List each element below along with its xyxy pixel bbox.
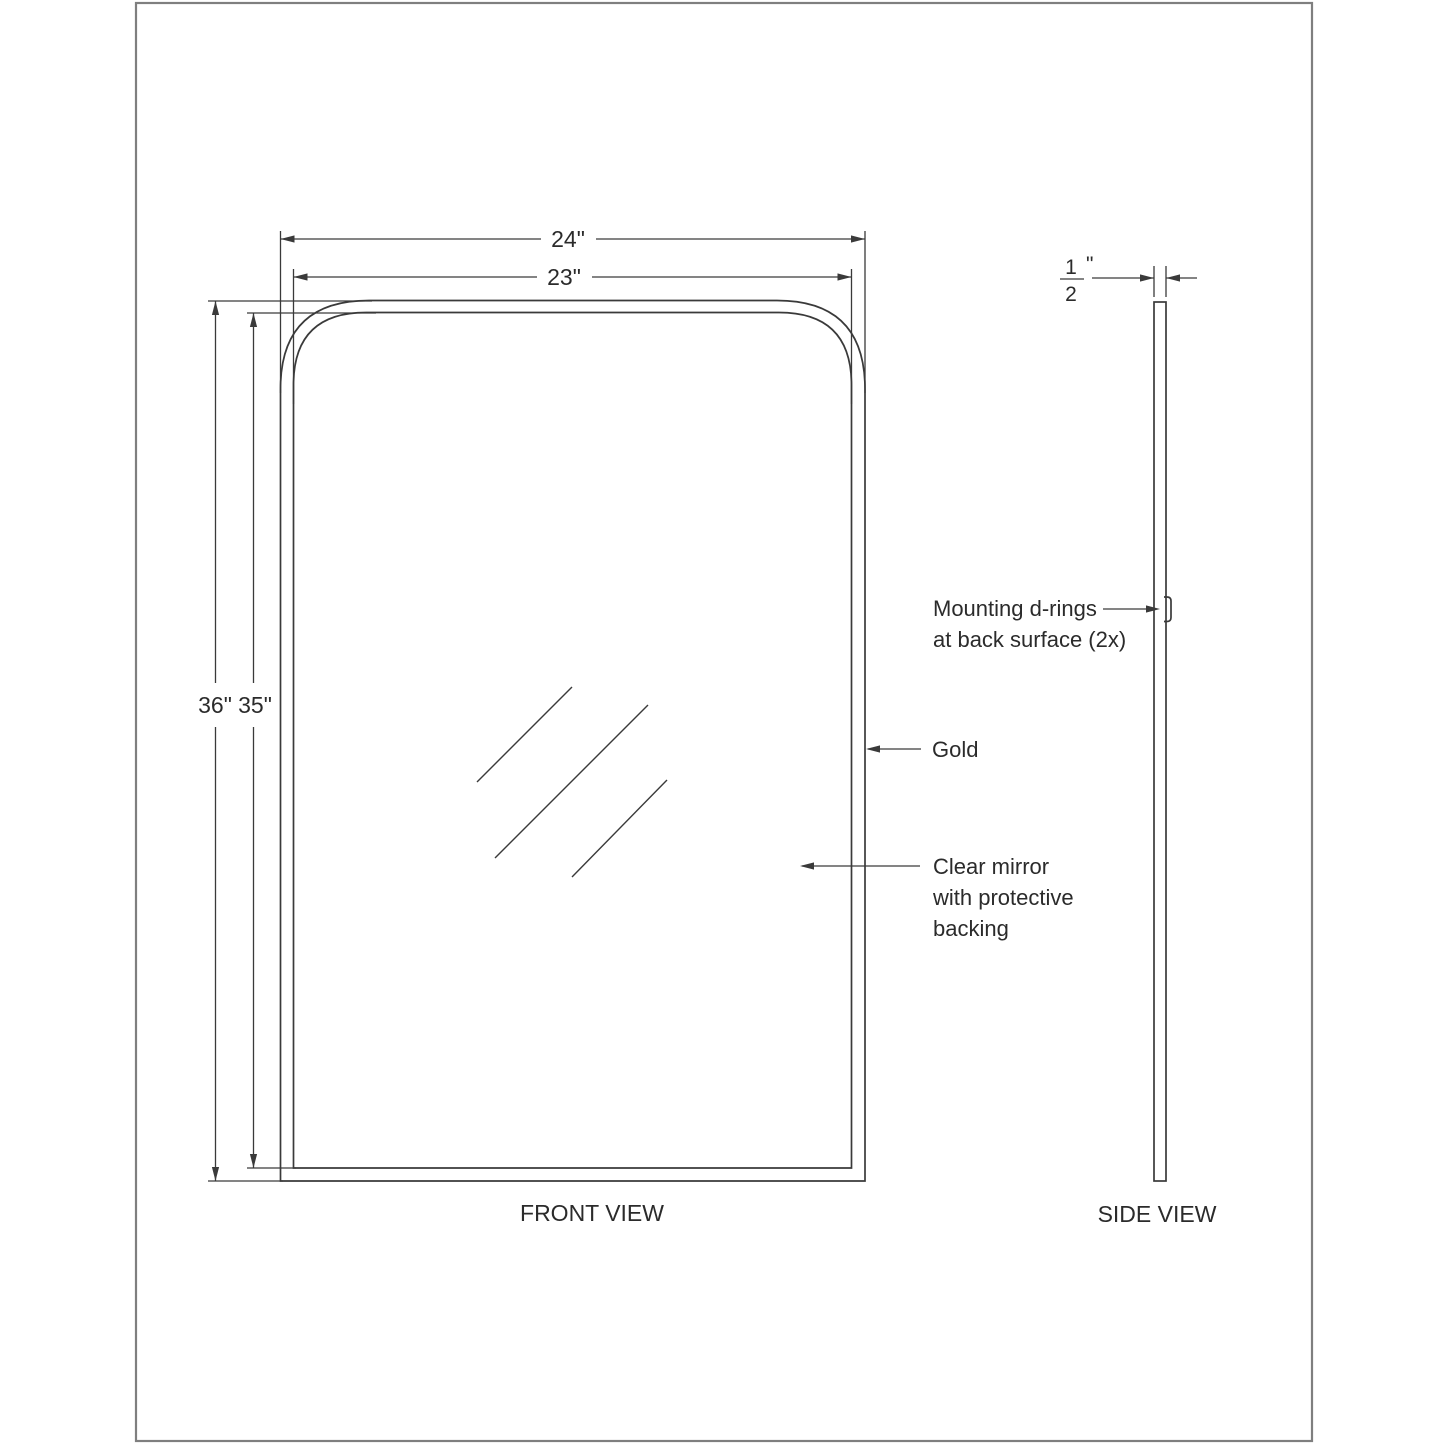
mirror-note-line-3: backing — [933, 916, 1009, 941]
arrow-36-bottom — [212, 1167, 219, 1181]
arrow-23-left — [294, 273, 308, 280]
front-view-label: FRONT VIEW — [520, 1200, 664, 1226]
front-view-mirror-edge — [294, 313, 852, 1169]
dring-note-line-1: Mounting d-rings — [933, 596, 1097, 621]
drawing-canvas: 24" 23" 36" 35" 1 2 " Mounting d-rings a… — [0, 0, 1445, 1445]
arrow-24-left — [281, 235, 295, 242]
dim-35-label: 35" — [238, 692, 272, 718]
mirror-note-line-2: with protective — [932, 885, 1074, 910]
thickness-fraction-denominator: 2 — [1065, 283, 1077, 306]
arrow-23-right — [838, 273, 852, 280]
front-view-outer-frame — [281, 301, 866, 1182]
dim-36-label: 36" — [198, 692, 232, 718]
arrow-35-top — [250, 313, 257, 327]
thickness-unit-label: " — [1086, 253, 1093, 276]
arrow-thickness-left — [1140, 274, 1154, 281]
dimension-lines — [208, 231, 1197, 1181]
mirror-shine-lines — [477, 687, 667, 877]
gold-label: Gold — [932, 737, 978, 762]
arrow-dring — [1146, 605, 1160, 612]
side-view-profile — [1154, 302, 1166, 1181]
mirror-shine-line-2 — [495, 705, 648, 858]
labels: 24" 23" 36" 35" 1 2 " Mounting d-rings a… — [198, 226, 1217, 1227]
object-lines — [281, 301, 1172, 1182]
mounting-dring-shape — [1164, 597, 1171, 622]
arrow-gold — [866, 745, 880, 752]
mirror-note-line-1: Clear mirror — [933, 854, 1049, 879]
arrow-24-right — [851, 235, 865, 242]
dim-24-label: 24" — [551, 226, 585, 252]
dim-23-label: 23" — [547, 264, 581, 290]
dring-note-line-2: at back surface (2x) — [933, 627, 1126, 652]
arrow-35-bottom — [250, 1154, 257, 1168]
arrow-mirror — [800, 862, 814, 869]
mirror-shine-line-3 — [572, 780, 667, 877]
arrow-thickness-right — [1166, 274, 1180, 281]
technical-drawing: 24" 23" 36" 35" 1 2 " Mounting d-rings a… — [0, 0, 1445, 1445]
mirror-shine-line-1 — [477, 687, 572, 782]
side-view-label: SIDE VIEW — [1098, 1201, 1217, 1227]
arrow-36-top — [212, 301, 219, 315]
arrowheads — [212, 235, 1180, 1181]
thickness-fraction-numerator: 1 — [1065, 256, 1077, 279]
